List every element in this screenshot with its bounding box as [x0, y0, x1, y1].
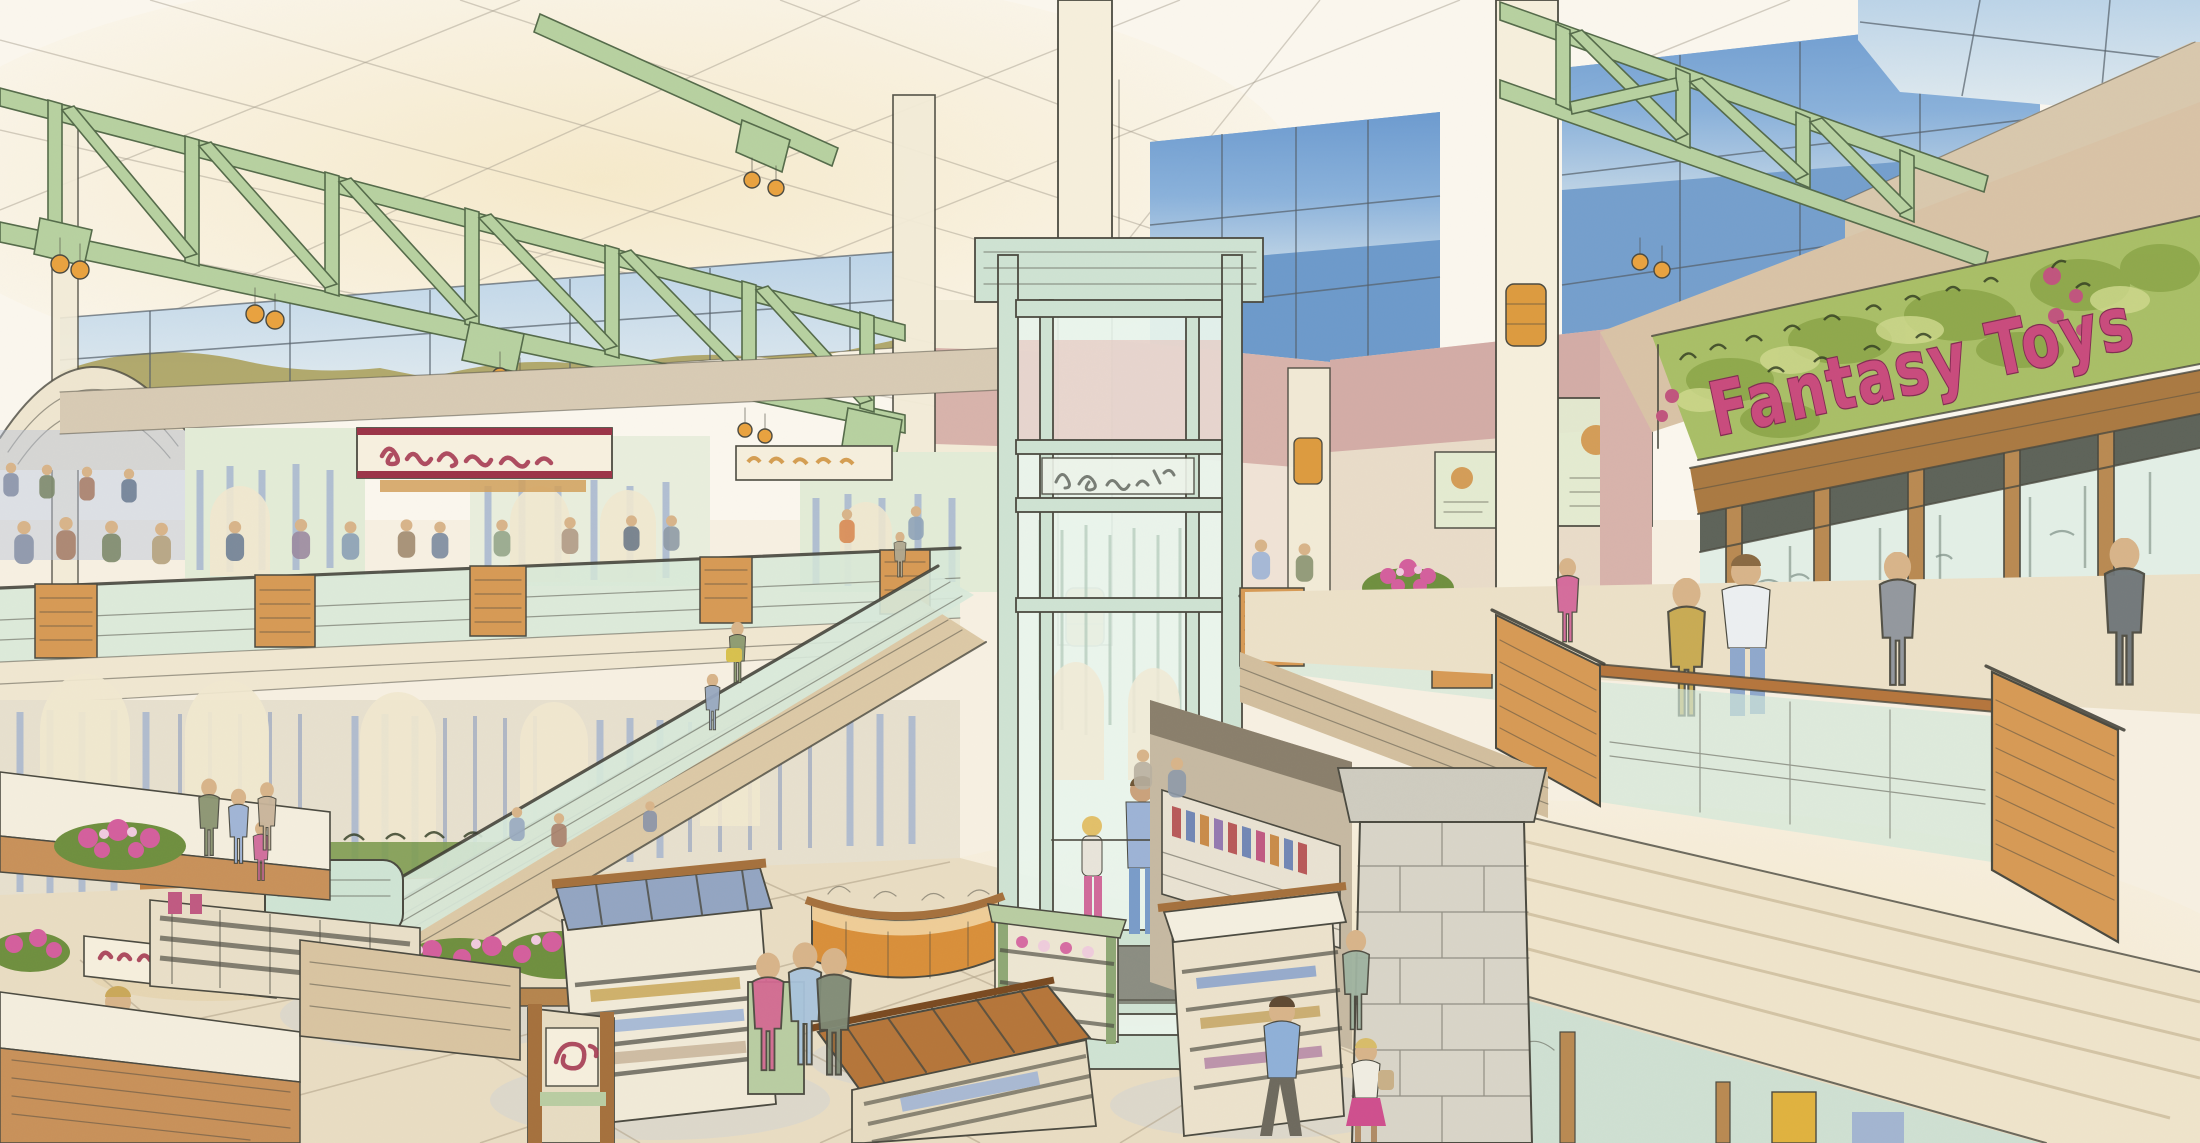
mall-atrium-rendering: Fantasy Toys	[0, 0, 2200, 1143]
second-upper-storefront-sign	[736, 446, 892, 480]
upper-level-storefront-sign	[357, 428, 612, 492]
elevator-fascia-sign	[1042, 458, 1194, 494]
kiosk-bin	[1772, 1092, 1816, 1143]
shopping-bag	[1378, 1070, 1394, 1090]
cart-mid	[1158, 886, 1346, 1136]
shopping-bag	[726, 648, 742, 662]
cart-sign-post	[528, 1004, 614, 1143]
wall-sconce-icon	[1294, 438, 1322, 484]
mall-rendering-canvas: Fantasy Toys	[0, 0, 2200, 1143]
wall-sconce-icon	[1506, 284, 1546, 346]
wall-banner	[1435, 452, 1497, 528]
pilaster	[1288, 368, 1330, 620]
